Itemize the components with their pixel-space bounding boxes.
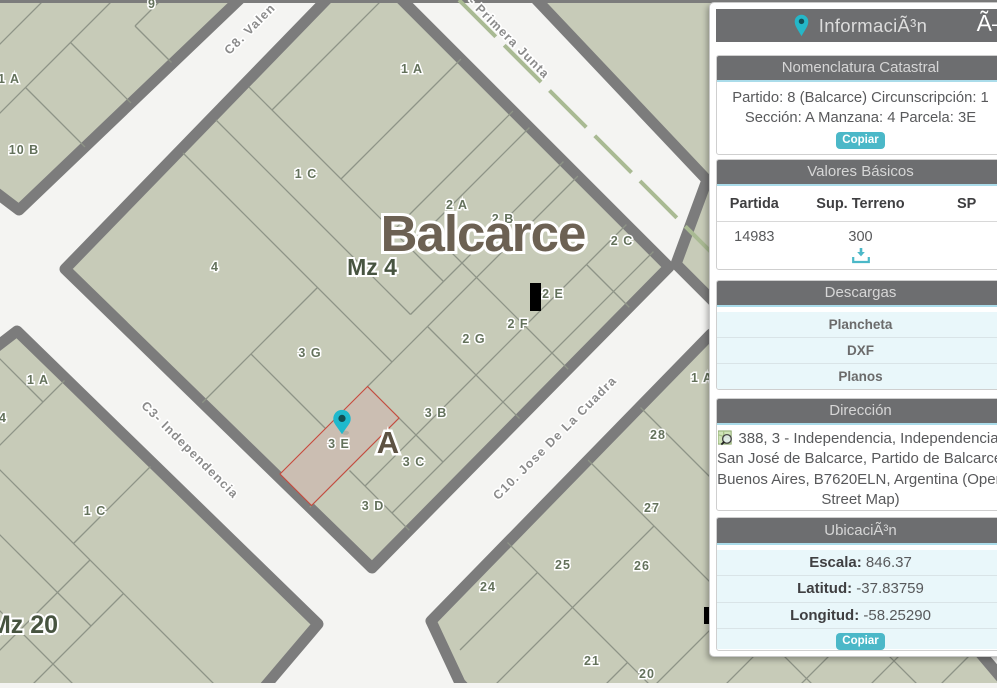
svg-text:2 F: 2 F [507, 317, 528, 331]
svg-text:20: 20 [639, 667, 655, 681]
svg-text:Mz 4: Mz 4 [347, 254, 397, 280]
svg-text:A: A [377, 425, 399, 460]
svg-text:4: 4 [211, 260, 219, 274]
svg-text:28: 28 [650, 428, 666, 442]
svg-text:1 C: 1 C [84, 504, 106, 518]
svg-text:Balcarce: Balcarce [381, 205, 586, 262]
svg-text:3 E: 3 E [328, 437, 350, 451]
svg-text:2 G: 2 G [462, 332, 485, 346]
svg-text:10 B: 10 B [9, 143, 39, 157]
svg-text:1 C: 1 C [295, 167, 317, 181]
svg-text:4: 4 [0, 411, 7, 425]
svg-text:Mz 20: Mz 20 [0, 611, 58, 639]
svg-text:21: 21 [584, 654, 600, 668]
svg-text:2 E: 2 E [542, 287, 564, 301]
svg-text:3 G: 3 G [298, 346, 321, 360]
svg-text:3 C: 3 C [403, 455, 425, 469]
svg-text:2 C: 2 C [611, 234, 633, 248]
svg-text:9: 9 [148, 0, 156, 11]
svg-text:27: 27 [644, 501, 660, 515]
svg-text:1 A: 1 A [0, 72, 20, 86]
svg-text:3 B: 3 B [425, 406, 447, 420]
svg-text:25: 25 [555, 558, 571, 572]
svg-text:3 D: 3 D [362, 499, 384, 513]
svg-text:1 A: 1 A [401, 62, 423, 76]
svg-text:1 A: 1 A [27, 373, 49, 387]
svg-text:24: 24 [480, 580, 496, 594]
svg-text:26: 26 [634, 559, 650, 573]
